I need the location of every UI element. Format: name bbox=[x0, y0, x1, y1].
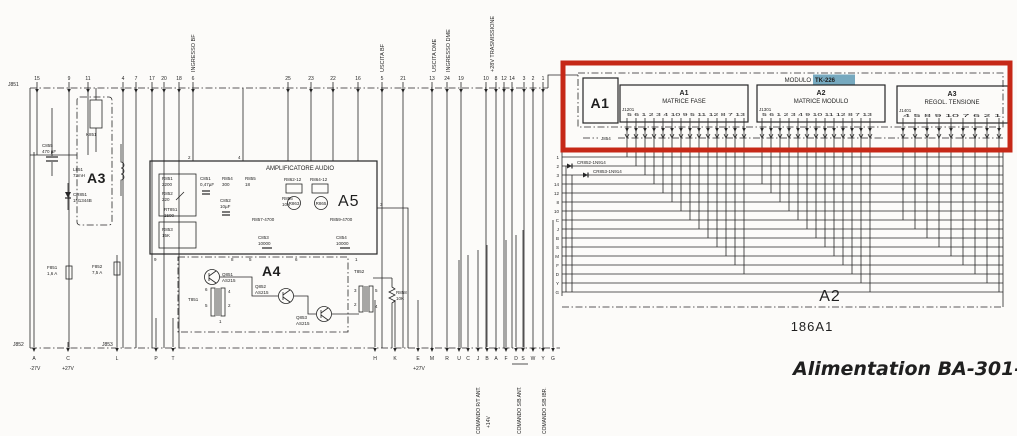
a3-outline bbox=[77, 97, 112, 225]
arrowhead bbox=[706, 128, 710, 132]
top-pin-number: 11 bbox=[85, 76, 90, 82]
arrowhead bbox=[823, 128, 827, 132]
connector-label-j852: J852 bbox=[13, 342, 24, 348]
arrowhead bbox=[901, 128, 905, 132]
top-pin-number: 7 bbox=[135, 76, 138, 82]
arrowhead bbox=[997, 128, 1001, 132]
top-pin-number: 12 bbox=[501, 76, 507, 82]
row-label: 2 bbox=[556, 164, 559, 169]
wire bbox=[294, 296, 316, 314]
top-pin-number: 9 bbox=[68, 76, 71, 82]
arrowhead bbox=[459, 89, 463, 93]
t852-transformer-symbol bbox=[369, 286, 373, 312]
a3-block-label: A3 bbox=[87, 170, 106, 186]
arrowhead bbox=[521, 348, 525, 352]
board-a1-pins: 5 6 1 2 3 4 10 9 5 11 12 8 7 13 bbox=[627, 112, 746, 117]
q852-label: Q852 bbox=[255, 284, 267, 289]
bottom-pin: H bbox=[373, 356, 377, 362]
board-a1-title: A1 bbox=[680, 90, 689, 97]
board-a3-pins: 4 5 8 9 10 7 6 2 1 bbox=[903, 113, 1002, 118]
q851-transistor-symbol bbox=[205, 270, 220, 285]
l851-label: L851 bbox=[73, 167, 84, 172]
r863-label: R863 bbox=[289, 201, 300, 206]
rt851-value: 1500 bbox=[164, 213, 175, 218]
t852-pin: 2 bbox=[354, 302, 357, 307]
q853-transistor-symbol bbox=[321, 308, 328, 313]
a5-pin: 6 bbox=[295, 257, 298, 262]
q852-transistor-symbol bbox=[279, 289, 294, 304]
arrowhead bbox=[485, 348, 489, 352]
row-label: S bbox=[556, 245, 559, 250]
arrowhead bbox=[688, 128, 692, 132]
q853-value: AS215 bbox=[296, 321, 310, 326]
top-pin-number: 16 bbox=[355, 76, 361, 82]
signal-label-28v-trasmissione: +28V TRASMISSIONE bbox=[490, 16, 496, 72]
bottom-left-pin: C bbox=[66, 356, 70, 362]
block-a4: A4 T851 6 4 2 5 1 Q851 AS215 Q852 AS215 … bbox=[178, 257, 407, 348]
r853-label: R853 bbox=[162, 227, 173, 232]
f852-label: F852 bbox=[92, 264, 103, 269]
row-label: C bbox=[556, 218, 560, 223]
board-a1-subtitle: MATRICE FASE bbox=[662, 99, 706, 105]
bottom-pin: S bbox=[521, 356, 525, 362]
c853-label: C853 bbox=[258, 235, 269, 240]
f852-value: 7,5 A bbox=[92, 270, 102, 275]
k851-label: K851 bbox=[86, 132, 97, 137]
arrowhead bbox=[868, 128, 872, 132]
bottom-pin: D bbox=[514, 356, 518, 362]
arrowhead bbox=[760, 128, 764, 132]
arrowhead bbox=[733, 128, 737, 132]
arrowhead bbox=[476, 348, 480, 352]
arrowhead bbox=[949, 128, 953, 132]
q851-label: Q851 bbox=[222, 272, 234, 277]
arrowhead bbox=[309, 89, 313, 93]
arrowhead bbox=[416, 348, 420, 352]
arrowhead bbox=[541, 348, 545, 352]
comando-sb-ant-label: COMANDO S/B ANT. bbox=[517, 386, 523, 434]
bottom-pin: F bbox=[504, 356, 507, 362]
comando-sb-ibr-label: COMANDO S/B IBR. bbox=[542, 387, 548, 434]
arrowhead bbox=[484, 89, 488, 93]
connector-label-j854: J854 bbox=[601, 136, 611, 141]
arrowhead bbox=[445, 89, 449, 93]
r858-resistor-symbol bbox=[389, 278, 395, 348]
arrowhead bbox=[625, 128, 629, 132]
cr851-diode-symbol bbox=[65, 192, 71, 198]
l851-value: 73mH bbox=[73, 173, 85, 178]
arrowhead bbox=[171, 348, 175, 352]
bottom-pin: G bbox=[551, 356, 555, 362]
a5-title: AMPLIFICATORE AUDIO bbox=[266, 166, 334, 172]
plus-14v-label: +14V bbox=[486, 416, 492, 428]
arrowhead bbox=[430, 89, 434, 93]
arrowhead bbox=[373, 348, 377, 352]
backplane: 1 2 3 14 12 8 10 C J B S M F D Y G CR852… bbox=[554, 150, 1003, 334]
arrowhead bbox=[67, 89, 71, 93]
a4-block-label: A4 bbox=[262, 263, 281, 279]
arrowhead bbox=[531, 348, 535, 352]
arrowhead bbox=[177, 89, 181, 93]
bottom-pin: A bbox=[494, 356, 498, 362]
arrowhead bbox=[937, 128, 941, 132]
top-pin-number: 20 bbox=[161, 76, 167, 82]
arrowhead bbox=[670, 128, 674, 132]
r851-label: R851 bbox=[162, 176, 173, 181]
bottom-pin: Y bbox=[541, 356, 545, 362]
arrowhead bbox=[742, 128, 746, 132]
r862-symbol bbox=[286, 184, 302, 193]
a5-pin: 9 bbox=[154, 257, 157, 262]
top-pin-number: 2 bbox=[532, 76, 535, 82]
t852-pin: 4 bbox=[375, 304, 378, 309]
t851-label: T851 bbox=[188, 297, 199, 302]
arrowhead bbox=[551, 348, 555, 352]
r864-label: R864-12 bbox=[310, 177, 328, 182]
schematic-page: J851 15 9 11 4 7 17 20 18 6 25 23 22 16 … bbox=[0, 0, 1017, 436]
bottom-pin: E bbox=[416, 356, 420, 362]
cr851-value: 1N1344B bbox=[73, 198, 92, 203]
r852-value: 220 bbox=[162, 197, 170, 202]
cr853-diode-symbol bbox=[583, 173, 588, 178]
f851-label: F851 bbox=[47, 265, 58, 270]
plus-27v-label: +27V bbox=[413, 366, 425, 372]
r858-label: R858 bbox=[396, 290, 407, 295]
modulo-label: MODULO bbox=[785, 78, 812, 84]
bottom-left-pin: A bbox=[32, 356, 36, 362]
q853-label: Q853 bbox=[296, 315, 308, 320]
r865-label: R865 bbox=[316, 201, 327, 206]
module-a1-big-label: A1 bbox=[591, 95, 610, 111]
arrowhead bbox=[769, 128, 773, 132]
arrowhead bbox=[643, 128, 647, 132]
c855-label: C855 bbox=[42, 143, 53, 148]
board-a2-title: A2 bbox=[817, 90, 826, 97]
q852-transistor-symbol bbox=[283, 297, 290, 302]
row-label: G bbox=[555, 290, 559, 295]
top-pin-number: 5 bbox=[381, 76, 384, 82]
module-tk226: A1 MODULO TK-226 A1 MATRICE FASE J1201 5… bbox=[578, 73, 1008, 141]
arrowhead bbox=[154, 348, 158, 352]
backplane-a2-label: A2 bbox=[819, 288, 841, 305]
arrowhead bbox=[356, 89, 360, 93]
bottom-pin: M bbox=[430, 356, 434, 362]
row-label: Y bbox=[556, 281, 559, 286]
signal-label-ingresso-dme: INGRESSO DME bbox=[446, 29, 452, 72]
unit-186a1-label: 186A1 bbox=[791, 319, 834, 334]
top-pin-number: 19 bbox=[458, 76, 464, 82]
arrowhead bbox=[380, 89, 384, 93]
t851-pin: 5 bbox=[205, 303, 208, 308]
arrowhead bbox=[531, 89, 535, 93]
arrowhead bbox=[514, 348, 518, 352]
connector-label-j853: J853 bbox=[102, 342, 113, 348]
c852-label: C852 bbox=[220, 198, 231, 203]
r859-label: R859-4700 bbox=[330, 217, 353, 222]
arrowhead bbox=[430, 348, 434, 352]
a5-pin: 2 bbox=[188, 155, 191, 160]
arrowhead bbox=[805, 128, 809, 132]
arrowhead bbox=[35, 89, 39, 93]
arrowhead bbox=[115, 348, 119, 352]
c854-label: C854 bbox=[336, 235, 347, 240]
row-label: 10 bbox=[554, 209, 560, 214]
arrowhead bbox=[814, 128, 818, 132]
top-pin-number: 13 bbox=[429, 76, 435, 82]
c855-value: 470 µF bbox=[42, 149, 56, 154]
top-pin-number: 1 bbox=[542, 76, 545, 82]
arrowhead bbox=[679, 128, 683, 132]
top-pin-number: 8 bbox=[495, 76, 498, 82]
plus-27v-label: +27V bbox=[62, 366, 74, 372]
a5-pin: 4 bbox=[238, 155, 241, 160]
row-label: 8 bbox=[556, 200, 559, 205]
top-connector: J851 15 9 11 4 7 17 20 18 6 25 23 22 16 … bbox=[8, 16, 545, 88]
rt851-label: RT851 bbox=[164, 207, 178, 212]
top-pin-number: 18 bbox=[176, 76, 182, 82]
t852-pin: 5 bbox=[375, 288, 378, 293]
top-pin-number: 15 bbox=[34, 76, 40, 82]
board-a3-title: A3 bbox=[948, 91, 957, 98]
a5-pin: 1 bbox=[355, 257, 358, 262]
t851-transformer-symbol bbox=[211, 288, 215, 316]
row-label: 3 bbox=[556, 173, 559, 178]
arrowhead bbox=[661, 128, 665, 132]
bottom-pin: U bbox=[457, 356, 461, 362]
c854-value: 10000 bbox=[336, 241, 349, 246]
row-label: M bbox=[555, 254, 559, 259]
arrowhead bbox=[457, 348, 461, 352]
arrowhead bbox=[522, 89, 526, 93]
top-pin-number: 21 bbox=[400, 76, 406, 82]
a5-pin: 5 bbox=[249, 257, 252, 262]
arrowhead bbox=[134, 89, 138, 93]
row-label: F bbox=[556, 263, 559, 268]
r854-label: R854 bbox=[222, 176, 233, 181]
r851-value: 2200 bbox=[162, 182, 173, 187]
bottom-left-pin: T bbox=[171, 356, 174, 362]
arrowhead bbox=[724, 128, 728, 132]
arrowhead bbox=[850, 128, 854, 132]
row-label: 14 bbox=[554, 182, 560, 187]
arrowhead bbox=[494, 89, 498, 93]
top-pin-number: 17 bbox=[149, 76, 155, 82]
top-pin-number: 10 bbox=[483, 76, 489, 82]
a5-pin: 8 bbox=[231, 257, 234, 262]
arrowhead bbox=[445, 348, 449, 352]
r857-label: R857-4700 bbox=[252, 217, 275, 222]
top-pin-number: 22 bbox=[330, 76, 336, 82]
arrowhead bbox=[859, 128, 863, 132]
r852-pot-arrow bbox=[176, 192, 184, 200]
q851-transistor-symbol bbox=[209, 271, 216, 276]
arrowhead bbox=[401, 89, 405, 93]
arrowhead bbox=[286, 89, 290, 93]
bottom-pin: R bbox=[445, 356, 449, 362]
arrowhead bbox=[778, 128, 782, 132]
arrowhead bbox=[841, 128, 845, 132]
arrowhead bbox=[466, 348, 470, 352]
arrowhead bbox=[504, 348, 508, 352]
q852-value: AS215 bbox=[255, 290, 269, 295]
r852-label: R852 bbox=[162, 191, 173, 196]
t852-transformer-symbol bbox=[359, 286, 363, 312]
page-title: Alimentation BA-301-A bbox=[791, 358, 1017, 380]
bottom-pin: C bbox=[466, 356, 470, 362]
block-a3: A3 K851 C855 470 µF L851 73mH CR851 1N13… bbox=[30, 88, 124, 279]
arrowhead bbox=[961, 128, 965, 132]
c851-label: C851 bbox=[200, 176, 211, 181]
r862-label: R862-12 bbox=[284, 177, 302, 182]
r854-value: 300 bbox=[222, 182, 230, 187]
top-pin-number: 25 bbox=[285, 76, 291, 82]
r858-value: 10K bbox=[396, 296, 404, 301]
arrowhead bbox=[985, 128, 989, 132]
arrowhead bbox=[121, 89, 125, 93]
arrowhead bbox=[634, 128, 638, 132]
row-label: D bbox=[556, 272, 560, 277]
row-label: 12 bbox=[554, 191, 560, 196]
q851-value: AS215 bbox=[222, 278, 236, 283]
c851-value: 0,47µF bbox=[200, 182, 214, 187]
top-pin-number: 24 bbox=[444, 76, 450, 82]
signal-label-ingresso-bf: INGRESSO BF bbox=[191, 34, 197, 72]
arrowhead bbox=[191, 89, 195, 93]
cr852-diode-symbol bbox=[567, 164, 572, 169]
arrowhead bbox=[787, 128, 791, 132]
r864-symbol bbox=[312, 184, 328, 193]
row-label: B bbox=[556, 236, 559, 241]
bottom-pin: B bbox=[485, 356, 489, 362]
top-pin-number: 4 bbox=[122, 76, 125, 82]
c853-value: 10000 bbox=[258, 241, 271, 246]
arrowhead bbox=[697, 128, 701, 132]
q852-transistor-symbol bbox=[283, 290, 290, 295]
board-a2-subtitle: MATRICE MODULO bbox=[794, 99, 849, 105]
arrowhead bbox=[66, 348, 70, 352]
t851-pin: 6 bbox=[205, 287, 208, 292]
cr851-label: CR851 bbox=[73, 192, 88, 197]
arrowhead bbox=[502, 89, 506, 93]
minus-27v-label: -27V bbox=[30, 366, 41, 372]
connector-label-j851: J851 bbox=[8, 82, 19, 88]
top-pin-number: 14 bbox=[509, 76, 515, 82]
l851-inductor-symbol bbox=[121, 144, 124, 196]
arrowhead bbox=[510, 89, 514, 93]
arrowhead bbox=[832, 128, 836, 132]
cr853-label: CR853-1N914 bbox=[593, 169, 622, 174]
board-a2-pins: 5 6 1 2 3 4 9 10 11 12 8 7 13 bbox=[762, 112, 873, 117]
k851-relay-symbol bbox=[90, 100, 102, 128]
bottom-pin: W bbox=[531, 356, 536, 362]
arrowhead bbox=[32, 348, 36, 352]
schematic-canvas: J851 15 9 11 4 7 17 20 18 6 25 23 22 16 … bbox=[0, 0, 1017, 436]
t851-pin: 4 bbox=[228, 289, 231, 294]
arrowhead bbox=[162, 89, 166, 93]
arrowhead bbox=[913, 128, 917, 132]
comando-rt-ant-label: COMANDO R/T ANT. bbox=[476, 387, 482, 434]
arrowhead bbox=[973, 128, 977, 132]
arrowhead bbox=[86, 89, 90, 93]
r853-value: 15K bbox=[162, 233, 170, 238]
arrowhead bbox=[393, 348, 397, 352]
bottom-left-pin: L bbox=[116, 356, 119, 362]
q853-transistor-symbol bbox=[321, 315, 328, 320]
top-pin-number: 6 bbox=[192, 76, 195, 82]
c852-value: 10µF bbox=[220, 204, 231, 209]
f851-value: 1,6 A bbox=[47, 271, 57, 276]
r855-label: R855 bbox=[245, 176, 256, 181]
a5-pin: 3 bbox=[380, 202, 383, 207]
top-pin-number: 23 bbox=[308, 76, 314, 82]
a5-block-label: A5 bbox=[338, 193, 360, 210]
bottom-connectors: J852 J853 A C L P T -27V +27V +27V H K E… bbox=[13, 342, 555, 434]
q851-transistor-symbol bbox=[209, 278, 216, 283]
signal-label-uscita-dme: USCITA DME bbox=[432, 38, 438, 72]
arrowhead bbox=[715, 128, 719, 132]
top-pin-number: 3 bbox=[523, 76, 526, 82]
arrowhead bbox=[541, 89, 545, 93]
t852-label: T852 bbox=[354, 269, 365, 274]
t851-transformer-symbol bbox=[221, 288, 225, 316]
bottom-left-pin: P bbox=[154, 356, 158, 362]
cr852-label: CR852-1N914 bbox=[577, 160, 606, 165]
r855-value: 18 bbox=[245, 182, 251, 187]
tk226-label: TK-226 bbox=[815, 78, 836, 84]
q853-transistor-symbol bbox=[317, 307, 332, 322]
row-label: J bbox=[557, 227, 559, 232]
t851-pin: 2 bbox=[228, 303, 231, 308]
arrowhead bbox=[150, 89, 154, 93]
board-a3-subtitle: REGOL. TENSIONE bbox=[925, 100, 980, 106]
bottom-pin: K bbox=[393, 356, 397, 362]
t852-pin: 3 bbox=[354, 288, 357, 293]
arrowhead bbox=[925, 128, 929, 132]
arrowhead bbox=[652, 128, 656, 132]
bottom-pin: J bbox=[477, 356, 480, 362]
row-label: 1 bbox=[556, 155, 559, 160]
t851-pin: 1 bbox=[219, 319, 222, 324]
arrowhead bbox=[331, 89, 335, 93]
arrowhead bbox=[494, 348, 498, 352]
signal-label-uscita-bf: USCITA BF bbox=[380, 43, 386, 72]
arrowhead bbox=[796, 128, 800, 132]
